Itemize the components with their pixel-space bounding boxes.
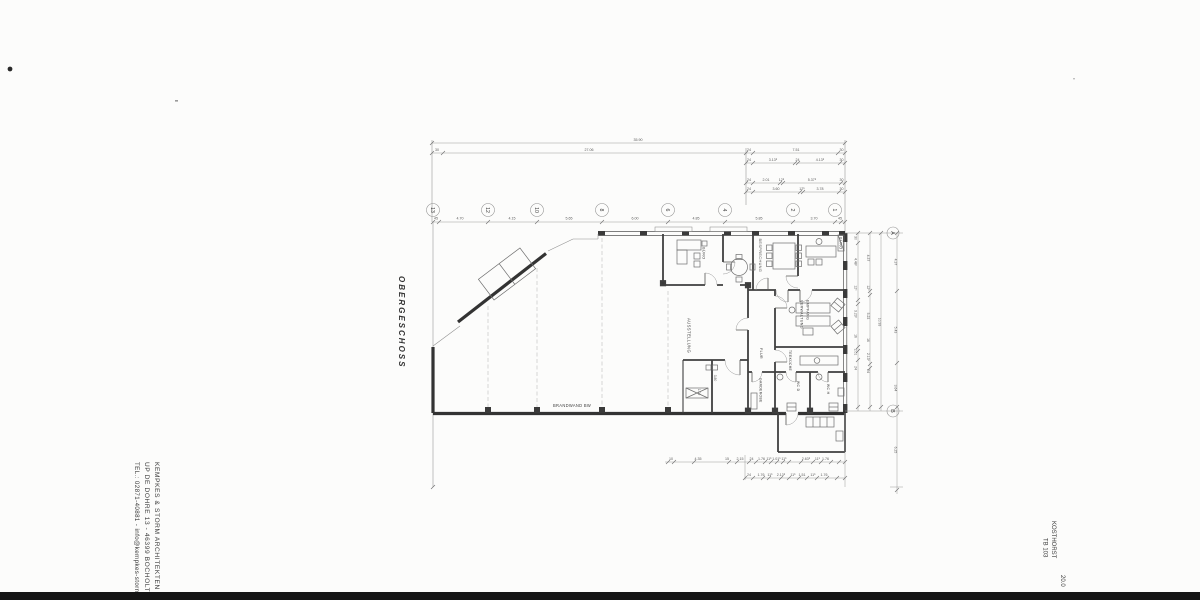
dim-text: 24 [747,158,751,162]
grid-spacing: 45 [838,217,842,221]
room-label-flur: FLUR [759,348,763,359]
grid-spacing: 45 [434,217,438,221]
grid-bubble-label: A [889,231,895,235]
dim-text: 30 [854,236,858,240]
dim-text: 10.93 [877,318,881,327]
room-label-wc-h: WC H [826,384,830,395]
room-label-besprechung: BESPRECHUNG [758,239,762,273]
sheet-title-texts: OBERGESCHOSS KEMPKES & STORM ARCHITEKTEN… [133,276,1065,600]
dim-text: 12⁵ [854,285,858,291]
dim-text: 3.60 [773,187,780,191]
architect-address: UP DE DOHRE 13 - 46399 BOCHOLT [143,462,150,592]
dim-text: 11⁵ [790,473,796,477]
dim-text: 1.76 [758,473,765,477]
annex-room [778,413,845,452]
dim-text: 1.51 [799,473,806,477]
dim-text: 1.00 [697,389,701,396]
dim-text: 24 [750,457,754,461]
scan-speck [175,100,178,102]
dim-text: 11⁵ [810,473,816,477]
dim-text: 12⁵ [799,187,805,191]
scan-artifacts [0,67,1200,600]
dim-text: 30 [840,148,844,152]
top-dimension-chains: 35.90 30 27.06 24 7.51 30 24 3.13⁵ 24 4.… [430,138,847,233]
scan-speck [1073,78,1075,79]
dashed-grid-lines [488,238,668,411]
dim-text: 16 [854,334,858,338]
dim-text: 10 [669,457,673,461]
dim-total-width: 35.90 [634,138,643,142]
grid-bubble-label: 1 [831,209,837,212]
dim-text: 24 [747,473,751,477]
dim-text: 30 [840,178,844,182]
grid-bubble-label: 4 [721,209,727,212]
dim-text: 4.48⁵ [854,258,858,267]
dim-text: 30 [840,187,844,191]
project-name: KOSTHORST [1050,521,1056,559]
dim-text: 1.76 [822,457,829,461]
room-label-empfang-line2: VERWALTUNG [800,300,804,329]
grid-spacing: 6.00 [632,217,639,221]
dim-text: 7.51 [793,148,800,152]
room-label-buero-left: BÜRO [702,247,706,260]
dim-text: 24 [854,366,858,370]
dim-text: 4.35 [695,457,702,461]
grid-spacing: 4.70 [457,217,464,221]
dim-text: 24 [747,178,751,182]
grid-bubble-label: 13 [429,207,435,213]
dim-text: 2.01 [763,178,770,182]
room-label-buero-right: BÜRO [839,237,843,250]
dim-text: 30 [435,148,439,152]
right-dimension-chains: A B 30 4.48⁵ 12⁵ 3.23⁵ 16 2.01 24 4.37 1… [845,227,903,494]
floor-plan-drawing: 35.90 30 27.06 24 7.51 30 24 3.13⁵ 24 4.… [0,0,1200,600]
room-label-garderobe: GARDEROBE [759,378,763,403]
dim-text: 5.37⁵ [808,178,817,182]
dim-text: 1.76 [758,457,765,461]
room-labels: AUSSTELLUNG BÜRO BESPRECHUNG BÜRO EMPFAN… [553,237,843,408]
dim-text: 3.13⁵ [769,158,778,162]
dim-text: 1.76 [821,473,828,477]
dim-text: 4.13⁵ [816,158,825,162]
dim-text: 2.15 [737,457,744,461]
grid-spacing: 5.65 [566,217,573,221]
sheet-number: TB 103 [1042,538,1048,558]
architect-contact: TEL.: 02871-40881 - info@kempkes-storm.d… [133,462,140,600]
dim-text: 3.78 [817,187,824,191]
floor-title: OBERGESCHOSS [397,276,406,368]
grid-spacing: 3.70 [811,217,818,221]
room-label-ausstellung: AUSSTELLUNG [687,318,692,353]
dim-text: 2.13⁵ [777,473,786,477]
dim-text: 16 [866,338,870,342]
architect-name: KEMPKES & STORM ARCHITEKTEN [153,462,160,590]
grid-bubble-label: 6 [664,209,670,212]
floor-plan-sheet: 35.90 30 27.06 24 7.51 30 24 3.13⁵ 24 4.… [0,0,1200,600]
dim-text: 3.23⁵ [854,310,858,319]
grid-spacing: 4.85 [693,217,700,221]
dim-text: 1.01⁵ [772,457,781,461]
dim-text: 2.01 [854,349,858,356]
dim-text: 11⁵ [815,457,821,461]
dim-text: 12⁵ [779,178,785,182]
dim-text: 6.25 [893,447,897,454]
room-label-wc-d: WC D [796,381,800,392]
dim-text: 4.37 [866,255,870,262]
scan-speck [8,67,13,72]
dim-text: 24 [747,148,751,152]
dim-text: 11⁵ [781,457,787,461]
grid-spacing: 5.85 [756,217,763,221]
room-label-empfang-line1: EMPFANG [806,300,810,320]
grid-bubble-label: B [889,409,895,413]
dim-text: 24 [747,187,751,191]
dim-text: 5.43 [893,327,897,334]
sheet-scale: 20.0 [1059,575,1065,587]
dim-text: 3.64 [893,385,897,392]
dim-text: 24 [866,369,870,373]
skylight-on-diagonal [478,248,535,300]
grid-bubble-label: 10 [533,207,539,213]
dim-text: 11⁵ [766,457,772,461]
dim-text: 15 [725,457,729,461]
dim-text: 5.23 [866,313,870,320]
dim-text: 2.13⁵ [866,353,870,362]
dim-text: 24 [796,158,800,162]
dim-text: 2.63⁵ [802,457,811,461]
grid-bubble-label: 12 [484,207,490,213]
grid-spacing: 4.15 [509,217,516,221]
dim-text: 4.37 [893,259,897,266]
grid-bubble-label: 2 [789,209,795,212]
dim-text: 3.80 [713,375,717,382]
grid-bubble-label: 8 [598,209,604,212]
dim-text: 27.06 [585,148,594,152]
fire-wall-label: BRANDWAND BW [553,403,591,408]
exterior-walls [433,227,847,414]
dim-text: 11⁵ [767,473,773,477]
dim-text: 12⁵ [866,285,870,291]
room-label-teekueche: TEEKÜCHE [788,350,792,372]
dim-text: 30 [840,158,844,162]
scan-edge-strip [0,592,1200,600]
